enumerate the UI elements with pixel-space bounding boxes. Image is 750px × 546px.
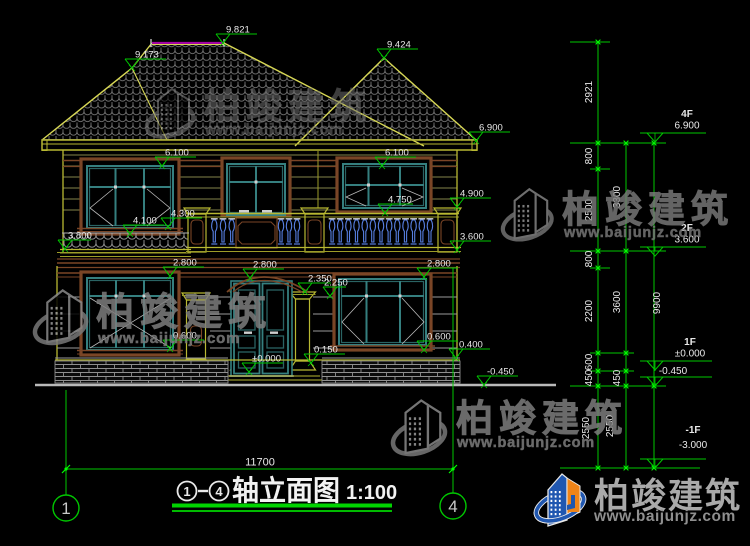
svg-text:www.baijunjz.com: www.baijunjz.com: [593, 508, 736, 525]
svg-text:www.baijunjz.com: www.baijunjz.com: [563, 225, 702, 241]
svg-text:11700: 11700: [245, 457, 275, 469]
svg-text:800: 800: [584, 147, 595, 164]
svg-text:2.250: 2.250: [324, 278, 348, 289]
svg-text:柏竣建筑: 柏竣建筑: [96, 292, 272, 334]
svg-text:800: 800: [584, 250, 595, 267]
svg-text:9900: 9900: [652, 291, 663, 314]
svg-text:1:100: 1:100: [346, 482, 397, 504]
svg-text:4F: 4F: [681, 109, 693, 120]
svg-text:600: 600: [584, 353, 595, 370]
svg-text:1F: 1F: [684, 337, 696, 348]
svg-text:www.baijunjz.com: www.baijunjz.com: [204, 122, 343, 138]
svg-text:1: 1: [183, 484, 190, 499]
svg-text:1: 1: [61, 499, 70, 518]
svg-text:±0.000: ±0.000: [252, 354, 281, 365]
svg-text:www.baijunjz.com: www.baijunjz.com: [97, 330, 240, 347]
svg-text:-1F: -1F: [686, 425, 701, 436]
svg-text:-0.450: -0.450: [659, 366, 688, 377]
svg-text:2200: 2200: [584, 299, 595, 322]
svg-text:4: 4: [215, 484, 223, 499]
svg-text:柏竣建筑: 柏竣建筑: [204, 86, 372, 127]
svg-text:450: 450: [584, 369, 595, 386]
svg-text:2921: 2921: [584, 80, 595, 103]
svg-text:-3.000: -3.000: [679, 440, 708, 451]
svg-text:±0.000: ±0.000: [675, 349, 706, 360]
svg-text:柏竣建筑: 柏竣建筑: [562, 188, 734, 230]
svg-text:3600: 3600: [612, 290, 623, 313]
svg-text:柏竣建筑: 柏竣建筑: [456, 397, 628, 439]
svg-text:www.baijunjz.com: www.baijunjz.com: [456, 435, 595, 451]
svg-text:4: 4: [448, 497, 457, 516]
svg-text:6.900: 6.900: [674, 121, 699, 132]
svg-text:450: 450: [612, 369, 623, 386]
svg-text:轴立面图: 轴立面图: [232, 474, 340, 506]
svg-text:-0.450: -0.450: [487, 367, 514, 378]
